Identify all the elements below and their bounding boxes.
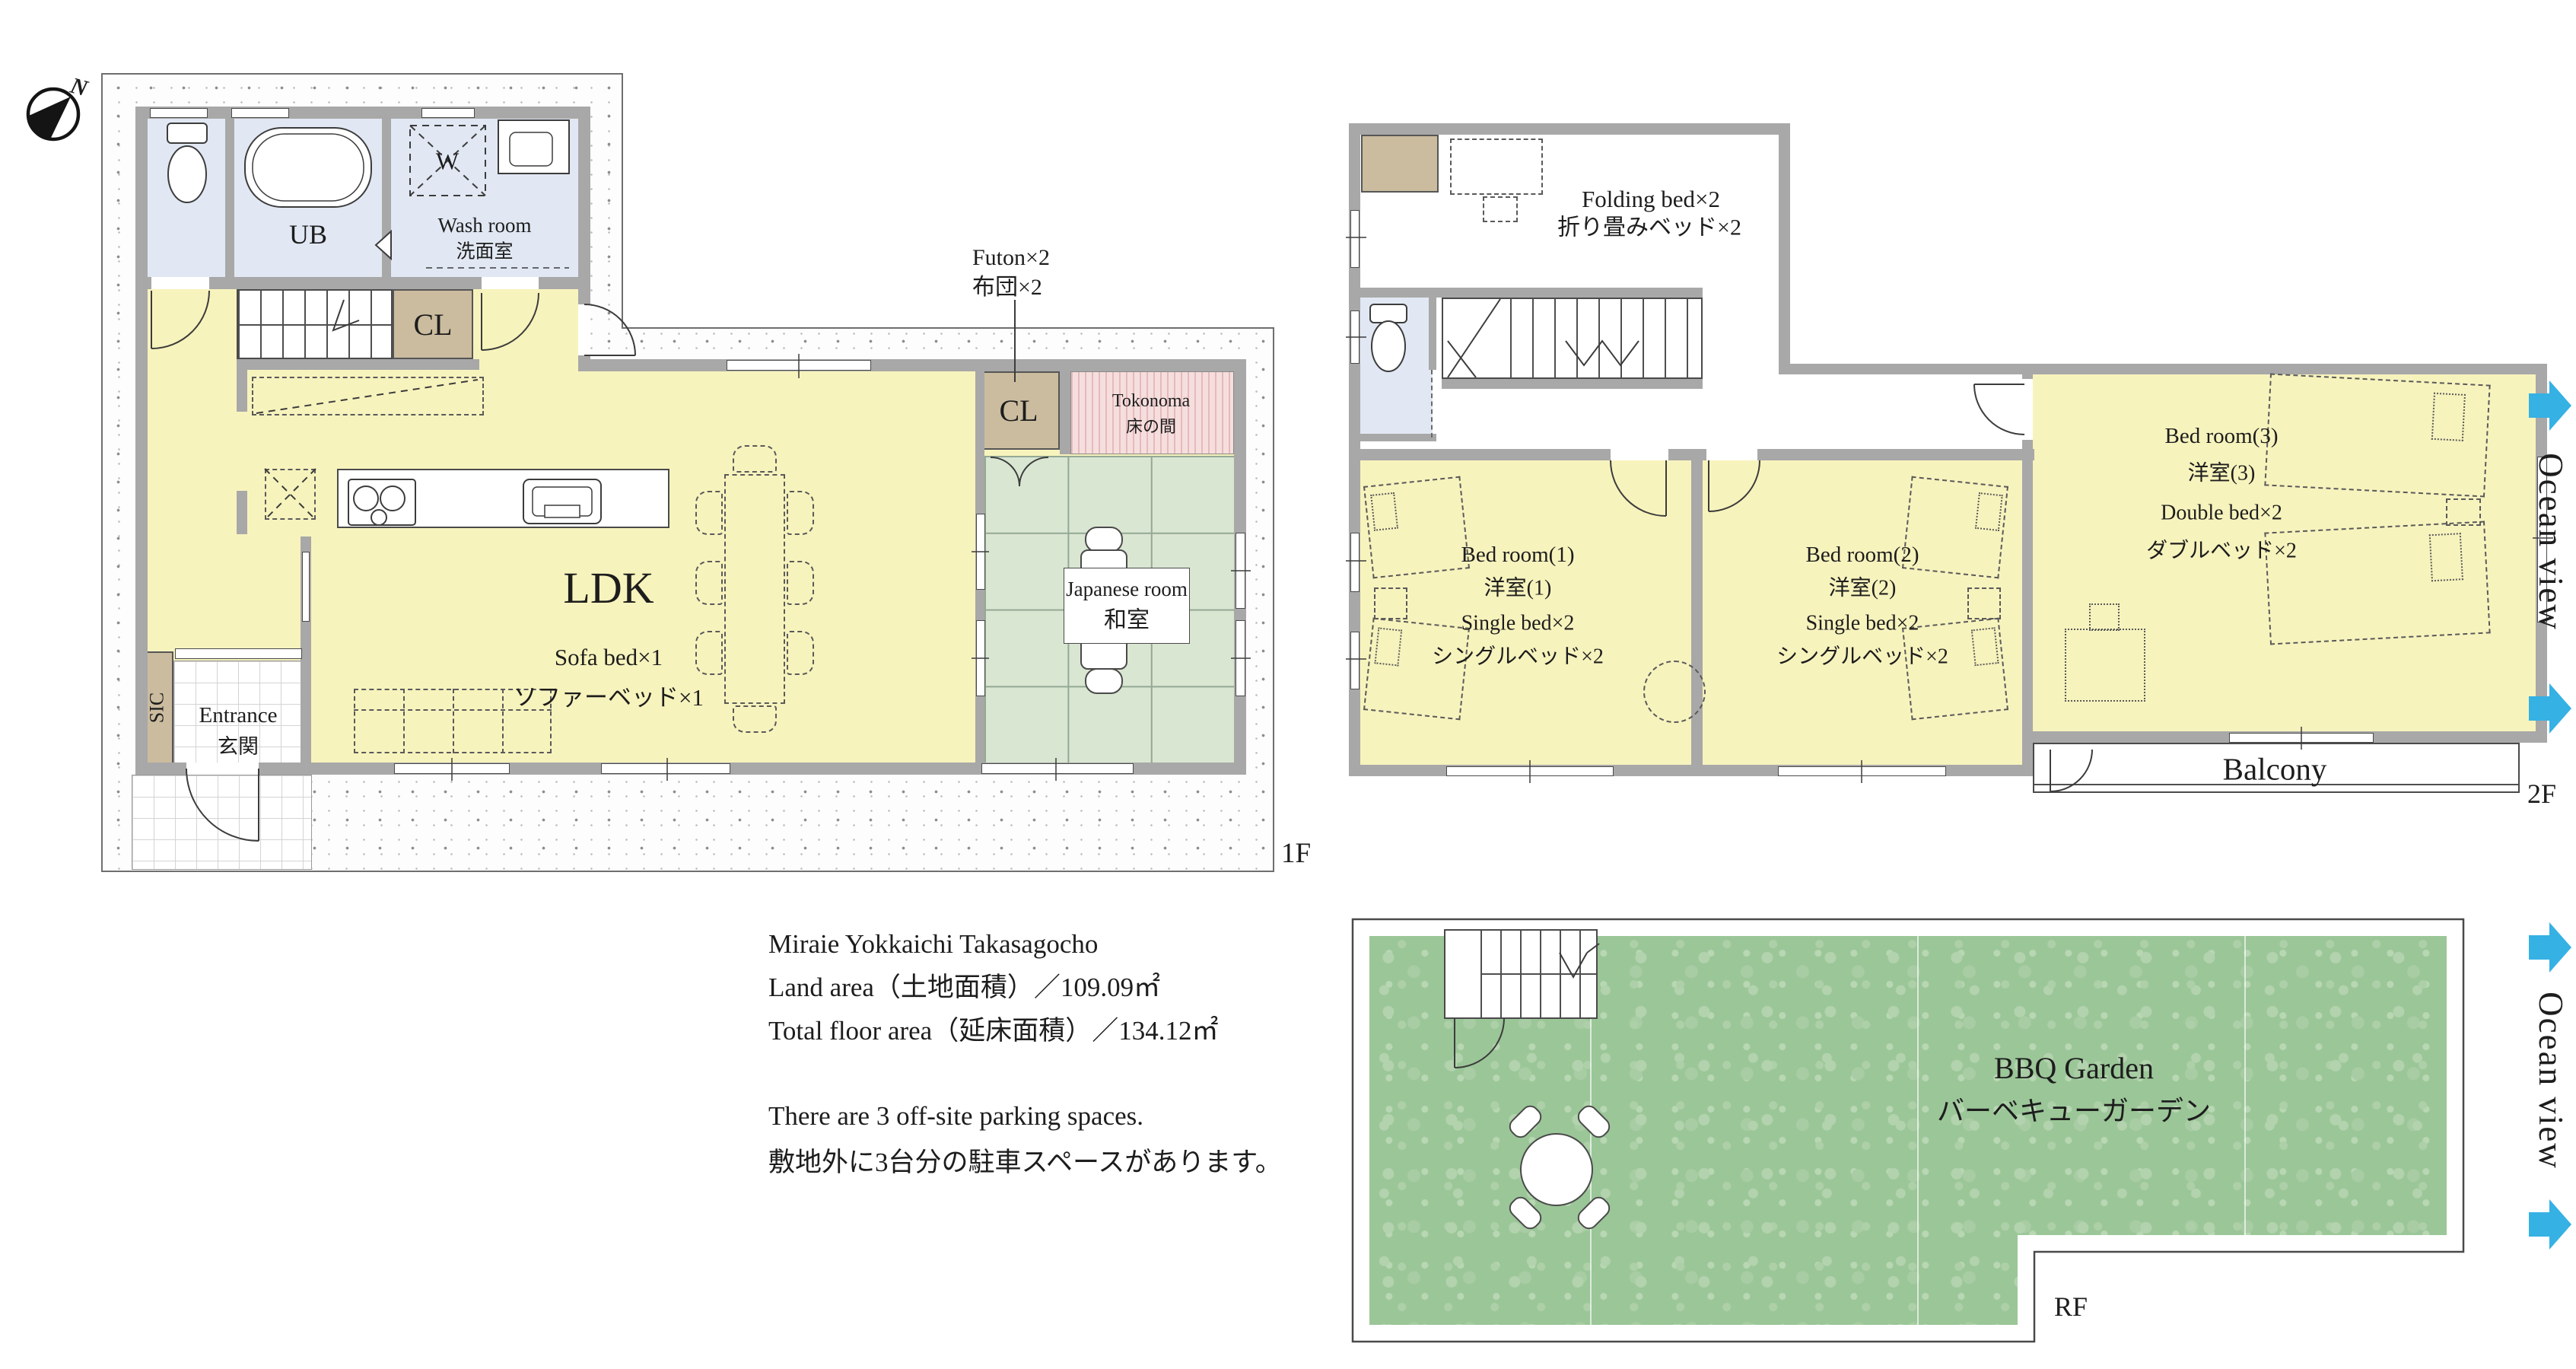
folding-bed-label-en: Folding bed×2: [1582, 186, 1720, 212]
closet-2f: [1361, 135, 1439, 193]
stair-midline: [1480, 973, 1596, 975]
washer-label: W: [436, 148, 459, 174]
bedroom2-name-en: Bed room(2): [1806, 543, 1919, 568]
dining-chair: [733, 705, 777, 733]
window: [1350, 533, 1360, 592]
window: [1350, 310, 1360, 364]
window: [1350, 210, 1360, 268]
double-bed: [2264, 374, 2490, 498]
dining-chair: [695, 491, 723, 535]
wall: [1442, 379, 1703, 389]
window: [421, 108, 475, 118]
floorplan-page: { "colors": { "wall_gray": "#a8a8a8", "r…: [0, 0, 2576, 1369]
window: [2229, 733, 2374, 743]
roof-label: RF: [2054, 1292, 2088, 1323]
entrance-label-en: Entrance: [199, 704, 277, 728]
nightstand: [1967, 587, 2001, 619]
wall: [1779, 364, 2547, 374]
tokonoma-alcove: [1070, 371, 1234, 454]
sliding-door: [976, 620, 985, 696]
folding-bed-chair: [1483, 196, 1518, 222]
pillow: [1971, 627, 1999, 666]
window: [150, 108, 208, 118]
wall: [1668, 449, 1706, 460]
door-opening: [186, 763, 259, 775]
washroom-label-en: Wash room: [437, 215, 531, 237]
stairs-1f: [237, 289, 393, 359]
dining-chair: [787, 491, 814, 535]
japanese-room-label-ja: 和室: [1104, 608, 1150, 633]
bedroom3-beds-en: Double bed×2: [2161, 502, 2282, 526]
entrance-porch: [132, 775, 312, 870]
dresser: [2065, 629, 2145, 702]
window: [727, 360, 871, 371]
sliding-door: [976, 514, 985, 590]
wall: [1349, 288, 1703, 298]
dining-chair: [787, 561, 814, 605]
compass-north-label: N: [68, 73, 90, 101]
property-parking-ja: 敷地外に3台分の駐車スペースがあります。: [768, 1148, 1282, 1178]
door-opening: [2022, 379, 2033, 440]
dining-chair: [695, 561, 723, 605]
wall: [1779, 123, 1790, 374]
bedroom1-beds-en: Single bed×2: [1461, 613, 1575, 636]
stair-treads: [1510, 299, 1703, 377]
folding-bed-label-ja: 折り畳みベッド×2: [1557, 215, 1741, 240]
wall: [1691, 460, 1703, 765]
nightstand: [1374, 587, 1407, 619]
garden-round-table: [1520, 1133, 1593, 1206]
wall: [237, 359, 479, 370]
door-opening: [482, 277, 539, 289]
wall: [1360, 434, 1436, 441]
zabuton-cushion: [1085, 668, 1123, 694]
nightstand: [2446, 498, 2481, 526]
wall: [237, 370, 247, 412]
property-name: Miraie Yokkaichi Takasagocho: [768, 930, 1098, 960]
bedroom1-beds-ja: シングルベッド×2: [1432, 646, 1604, 670]
door-opening: [1706, 449, 1757, 460]
window: [981, 763, 1134, 774]
wall: [1429, 298, 1436, 370]
toilet-curtain-line: [1431, 370, 1433, 438]
toilet-room-2f: [1360, 298, 1433, 438]
door-opening: [1611, 449, 1668, 460]
window: [1446, 766, 1614, 776]
property-land-area: Land area（土地面積）／109.09㎡: [768, 973, 1160, 1003]
stairs-rf: [1444, 929, 1598, 1019]
window: [601, 763, 730, 774]
bedroom1-name-en: Bed room(1): [1461, 543, 1575, 568]
sofa-label-en: Sofa bed×1: [555, 645, 663, 670]
double-bed: [2264, 521, 2490, 645]
shoe-cabinet: [175, 648, 302, 659]
refrigerator: [265, 469, 316, 520]
stair-midline: [238, 324, 391, 326]
window: [231, 108, 289, 118]
bedroom3-name-en: Bed room(3): [2165, 425, 2279, 449]
tokonoma-label-ja: 床の間: [1126, 418, 1176, 436]
bedroom3-name-ja: 洋室(3): [2188, 463, 2256, 486]
pillow: [2429, 533, 2463, 581]
bedroom2-beds-en: Single bed×2: [1806, 613, 1919, 636]
window: [394, 763, 510, 774]
bathroom-ub: [234, 119, 382, 277]
stairs-2f: [1442, 298, 1703, 379]
wall: [1349, 123, 1790, 135]
bedroom3-beds-ja: ダブルベッド×2: [2146, 540, 2297, 564]
door-opening: [151, 277, 209, 289]
sliding-door: [302, 552, 310, 622]
pillow: [1374, 627, 1402, 666]
window: [1236, 533, 1245, 609]
futon-label-ja: 布団×2: [972, 275, 1042, 300]
window: [1236, 620, 1245, 696]
japanese-room-label-en: Japanese room: [1066, 578, 1188, 601]
kitchen-counter: [337, 469, 669, 528]
pillow: [1975, 492, 2003, 531]
dining-table: [724, 474, 785, 704]
window: [1778, 766, 1946, 776]
zabuton-cushion: [1085, 527, 1123, 552]
balcony-label: Balcony: [2223, 752, 2327, 786]
property-parking-en: There are 3 off-site parking spaces.: [768, 1102, 1143, 1132]
wall: [225, 113, 234, 283]
folding-bed: [1450, 138, 1543, 195]
toilet-room-1f: [148, 119, 225, 277]
sofa-armrest-line: [502, 689, 504, 753]
bbq-garden-label-ja: バーベキューガーデン: [1937, 1097, 2211, 1127]
sofa-label-ja: ソファーベッド×1: [514, 685, 704, 711]
sofa-seat-line: [453, 689, 454, 753]
bedroom1-name-ja: 洋室(1): [1484, 578, 1552, 601]
door-opening: [578, 304, 590, 355]
ub-label: UB: [289, 220, 327, 250]
sofa-armrest-line: [403, 689, 405, 753]
wall: [382, 113, 391, 283]
floor1-label: 1F: [1281, 839, 1311, 870]
dining-chair: [733, 445, 777, 473]
single-bed: [1363, 476, 1470, 579]
dining-chair: [695, 631, 723, 675]
ocean-view-label-rf: Ocean view: [2531, 992, 2569, 1170]
dining-chair: [787, 631, 814, 675]
wall: [237, 491, 247, 534]
entrance-label-ja: 玄関: [218, 736, 259, 759]
tokonoma-label-en: Tokonoma: [1112, 391, 1190, 411]
bbq-garden-label-en: BBQ Garden: [1994, 1052, 2154, 1085]
property-total-floor-area: Total floor area（延床面積）／134.12㎡: [768, 1017, 1218, 1046]
round-rug: [1643, 661, 1706, 723]
floor2-label: 2F: [2527, 779, 2556, 810]
bedroom2-beds-ja: シングルベッド×2: [1776, 646, 1948, 670]
dresser-stool: [2089, 603, 2120, 631]
washroom-label-ja: 洗面室: [456, 241, 513, 263]
lawn-seam-line: [1917, 936, 1919, 1325]
wall: [578, 359, 1246, 371]
japanese-closet-label: CL: [999, 394, 1038, 428]
window: [1350, 632, 1360, 689]
ldk-label: LDK: [563, 564, 654, 613]
kitchen-cupboard: [252, 377, 484, 415]
wall: [1349, 449, 1611, 460]
pillow: [2431, 393, 2466, 441]
hall-closet-label: CL: [413, 308, 452, 342]
futon-label-en: Futon×2: [972, 245, 1050, 270]
wall: [1060, 371, 1070, 454]
ocean-view-label-2f: Ocean view: [2531, 453, 2569, 631]
wall: [1757, 449, 2034, 460]
bedroom2-name-ja: 洋室(2): [1829, 578, 1897, 601]
pillow: [1370, 492, 1398, 531]
sic-label: SIC: [147, 692, 169, 723]
wall: [135, 107, 148, 775]
